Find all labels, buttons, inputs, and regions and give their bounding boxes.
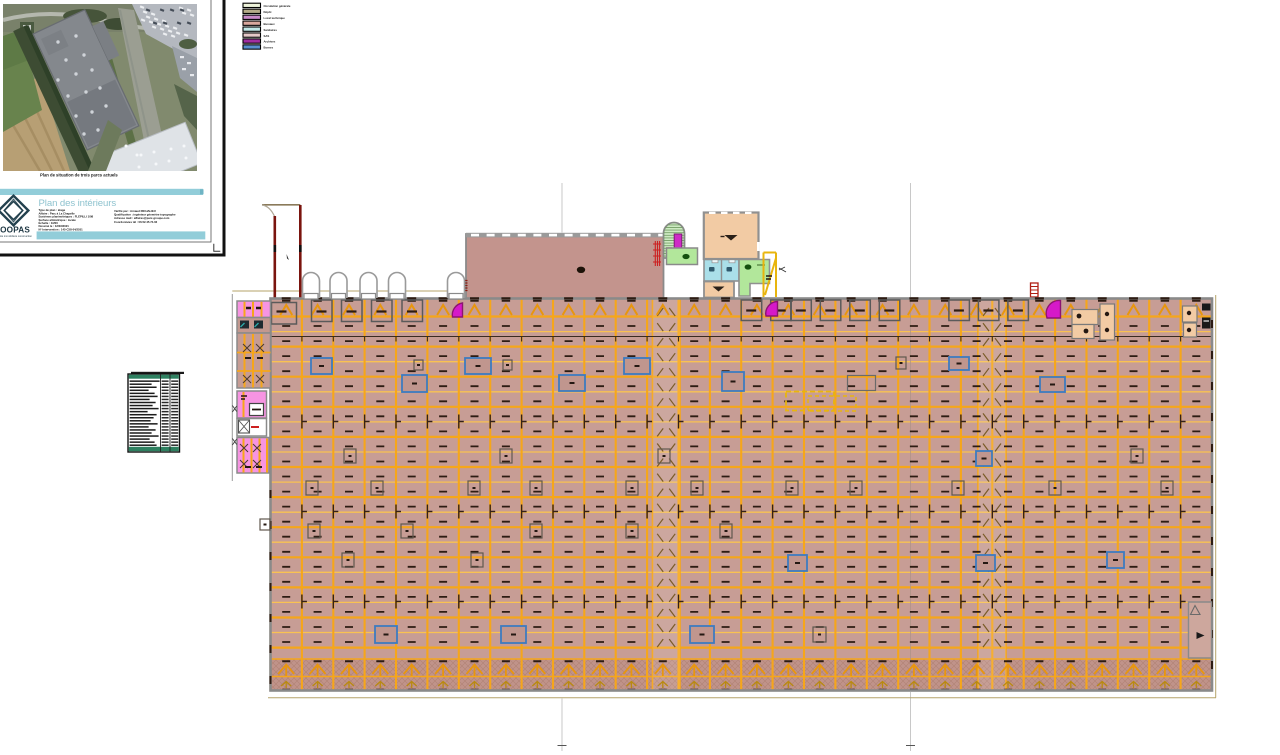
svg-text:Bureaux: Bureaux	[264, 22, 276, 26]
svg-text:Circulation générale: Circulation générale	[264, 4, 291, 8]
svg-text:Dépôt: Dépôt	[264, 10, 272, 14]
svg-text:SAS: SAS	[264, 34, 270, 38]
svg-text:Sanitaires: Sanitaires	[264, 28, 278, 32]
svg-text:N° Intervention : 145-C58-04/2: N° Intervention : 145-C58-04/2551	[39, 227, 84, 231]
svg-text:Coordonnées tél : 06.52.45.74.: Coordonnées tél : 06.52.45.74.02	[114, 220, 158, 224]
svg-text:Archives: Archives	[264, 40, 276, 44]
svg-text:sociéte immobiliere constructi: sociéte immobiliere construction	[0, 234, 32, 238]
svg-text:Bornes: Bornes	[264, 46, 274, 50]
svg-text:Plan de situation de trois par: Plan de situation de trois parcs actuels	[40, 173, 118, 178]
svg-text:Local technique: Local technique	[264, 16, 286, 20]
svg-text:ROOPAS: ROOPAS	[0, 226, 30, 235]
